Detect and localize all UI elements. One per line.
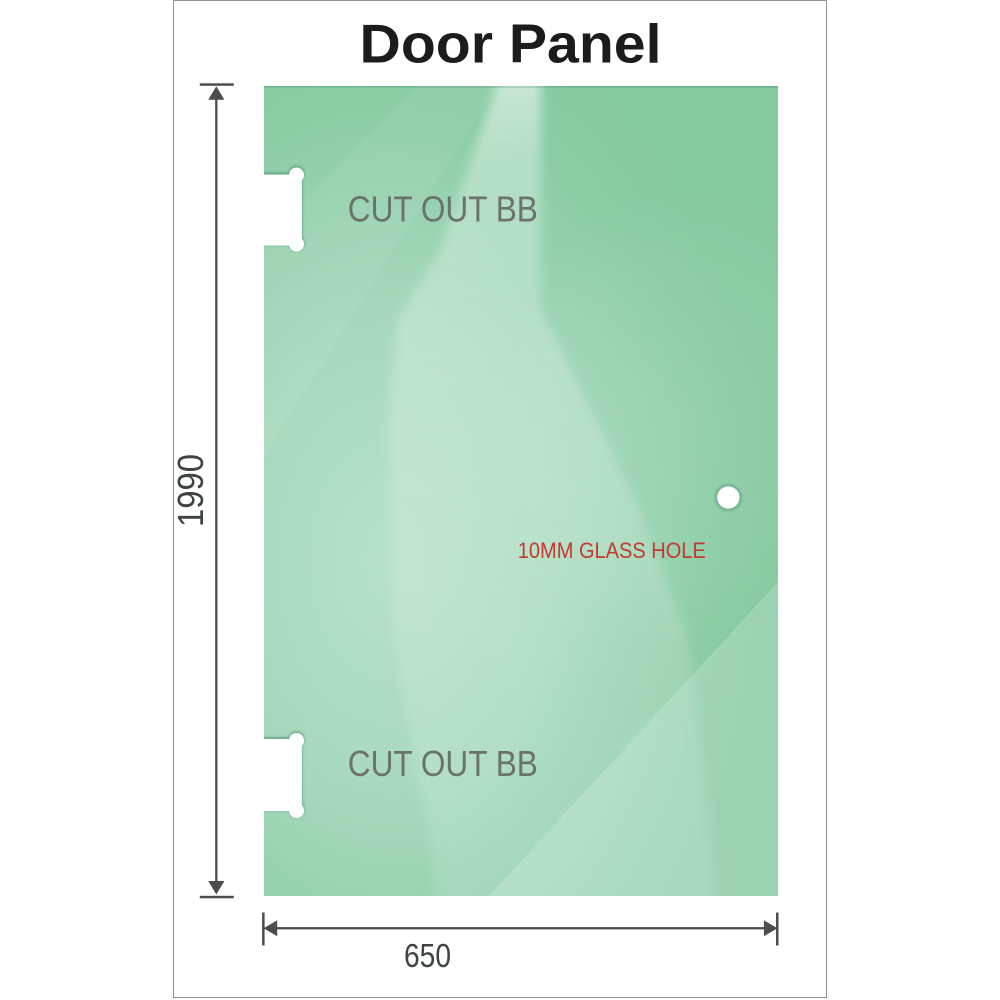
svg-text:CUT OUT BB: CUT OUT BB — [348, 743, 538, 784]
svg-text:650: 650 — [404, 938, 451, 975]
svg-text:1990: 1990 — [170, 454, 211, 527]
svg-text:CUT OUT BB: CUT OUT BB — [348, 189, 538, 230]
svg-text:10MM GLASS HOLE: 10MM GLASS HOLE — [518, 538, 706, 563]
svg-text:Door Panel: Door Panel — [360, 13, 662, 75]
